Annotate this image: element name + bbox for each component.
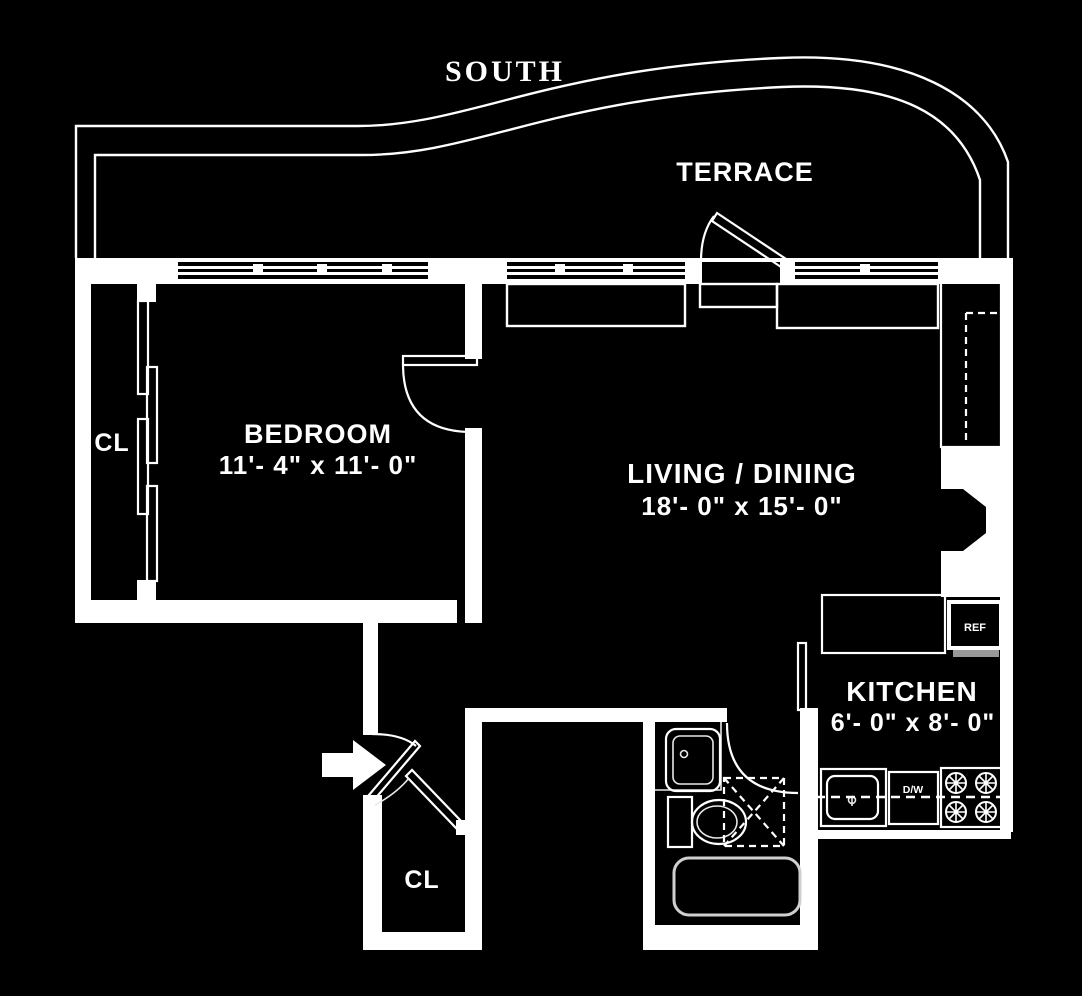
sink-drain	[681, 751, 688, 758]
window-mullion	[555, 264, 565, 275]
entry-closet-south-wall	[363, 932, 481, 950]
entry-closet-door	[375, 770, 462, 828]
closet-jamb-top	[137, 284, 156, 302]
bedroom-east-wall-upper	[465, 284, 482, 359]
burner-icon	[976, 773, 996, 793]
orientation-label: SOUTH	[445, 55, 565, 88]
bedroom-window	[178, 264, 428, 284]
closet-jamb-bottom	[137, 580, 156, 602]
window-mullion	[317, 264, 327, 275]
door-swing-arc	[727, 723, 798, 793]
window-glazing-line	[507, 266, 685, 269]
door-swing-arc	[403, 366, 468, 432]
burner-icon	[976, 802, 996, 822]
refrigerator-shadow	[953, 650, 999, 657]
entry-closet-label: CL	[404, 866, 439, 894]
door-swing-arc	[372, 734, 416, 746]
bathroom-west-wall	[643, 722, 655, 925]
window-sill-line	[178, 279, 428, 284]
door-leaf	[798, 643, 806, 710]
left-closet-label: CL	[94, 429, 129, 457]
burner-icon	[946, 802, 966, 822]
left-closet-sliding-doors	[138, 301, 157, 581]
utility-closet	[941, 281, 1001, 447]
window-mullion	[860, 264, 870, 275]
refrigerator-label: REF	[964, 622, 986, 634]
living-dining-label: LIVING / DINING	[627, 458, 857, 489]
kitchen-label: KITCHEN	[846, 676, 977, 707]
bathroom-south-wall	[643, 925, 818, 950]
bedroom-door	[403, 356, 477, 432]
living-window-left	[507, 264, 685, 284]
wall-segment	[428, 258, 507, 284]
terrace-inner-line	[95, 86, 980, 258]
bedroom-dimensions: 11'- 4" x 11'- 0"	[219, 450, 418, 480]
bedroom-south-wall	[75, 600, 457, 623]
toilet-bowl-rim	[697, 806, 737, 838]
floor-plan-drawing: REF D/W	[0, 0, 1082, 996]
living-dining-dimensions: 18'- 0" x 15'- 0"	[641, 491, 842, 521]
wall-segment	[685, 258, 702, 284]
utility-closet-dashed-shelf	[966, 313, 999, 445]
terrace-door-threshold	[700, 284, 777, 307]
entry-closet-west-wall	[363, 795, 382, 950]
toilet-tank	[668, 797, 692, 847]
wall-segment	[780, 258, 795, 284]
vanity-sink-basin	[673, 736, 713, 784]
kitchen-counter-peninsula	[822, 595, 945, 653]
window-glazing-line	[507, 272, 685, 275]
north-wall	[75, 258, 1008, 284]
burner-icon	[946, 773, 966, 793]
foyer-west-wall	[363, 623, 378, 735]
living-window-right	[795, 264, 938, 284]
door-leaf	[406, 770, 462, 828]
window-mullion	[382, 264, 392, 275]
floor-plan: REF D/W	[0, 0, 1082, 996]
west-wall	[75, 258, 91, 623]
bathroom-north-wall	[465, 708, 727, 722]
bathtub	[674, 858, 800, 915]
window-sill-projection	[777, 284, 938, 328]
bedroom-east-wall-lower	[465, 428, 482, 623]
window-sill-projection	[507, 284, 685, 326]
bathroom-east-wall	[800, 708, 818, 950]
wall-outer-edge	[75, 258, 1008, 262]
entry	[322, 734, 420, 800]
window-mullion	[253, 264, 263, 275]
door-swing-arc	[701, 216, 714, 261]
utility-closet-outline	[941, 281, 1001, 447]
window-mullion	[623, 264, 633, 275]
kitchen-south-wall	[815, 830, 1011, 839]
dishwasher-label: D/W	[903, 784, 924, 796]
kitchen-dimensions: 6'- 0" x 8'- 0"	[831, 709, 996, 737]
entry-arrow-icon	[322, 740, 386, 790]
bedroom-label: BEDROOM	[244, 419, 392, 449]
foyer-east-wall	[465, 708, 482, 950]
terrace-label: TERRACE	[676, 157, 814, 187]
walls	[75, 258, 1013, 950]
bathroom	[655, 643, 806, 915]
